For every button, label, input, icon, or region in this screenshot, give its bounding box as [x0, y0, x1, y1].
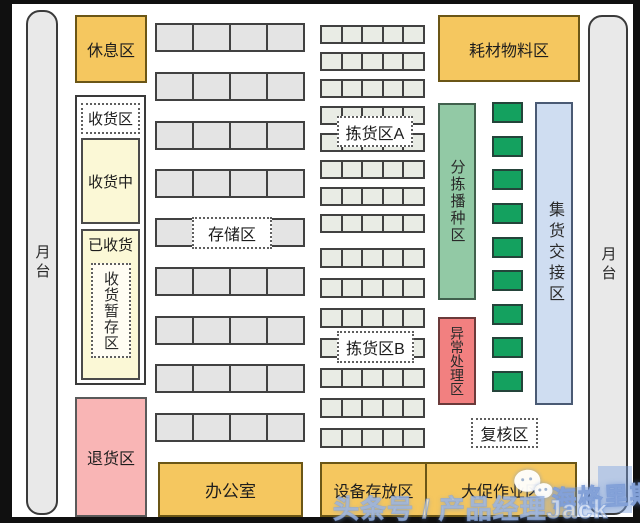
shelf-cell — [402, 216, 423, 231]
shelf-cell — [341, 370, 362, 386]
frame-bottom — [0, 517, 640, 523]
shelf-row — [320, 248, 425, 268]
shelf-cell — [361, 310, 382, 326]
shelf-cell — [192, 25, 229, 50]
shelf-row — [155, 169, 305, 198]
shelf-cell — [157, 366, 192, 391]
shelf-cell — [322, 81, 341, 96]
shelf-cell — [266, 25, 303, 50]
shelf-cell — [361, 54, 382, 69]
frame-left — [0, 0, 12, 523]
shelf-cell — [341, 27, 362, 42]
shelf-cell — [322, 400, 341, 416]
shelf-cell — [229, 366, 266, 391]
shelf-cell — [157, 415, 192, 440]
zone-picking-a-label: 拣货区A — [337, 116, 413, 147]
shelf-cell — [192, 123, 229, 148]
shelf-cell — [341, 400, 362, 416]
shelf-cell — [382, 250, 403, 266]
shelf-cell — [322, 310, 341, 326]
shelf-cell — [402, 310, 423, 326]
shelf-cell — [322, 189, 341, 204]
shelf-cell — [266, 74, 303, 99]
shelf-cell — [192, 318, 229, 343]
shelf-cell — [157, 74, 192, 99]
shelf-cell — [361, 430, 382, 446]
dock-left: 月台 — [26, 10, 58, 515]
shelf-cell — [266, 123, 303, 148]
sorting-slot — [492, 169, 523, 190]
zone-receiving-staging: 收货暂存区 — [91, 263, 131, 358]
shelf-row — [320, 368, 425, 388]
shelf-cell — [402, 162, 423, 177]
shelf-row — [320, 79, 425, 98]
shelf-cell — [382, 81, 403, 96]
shelf-cell — [266, 171, 303, 196]
zone-received: 已收货 收货暂存区 — [81, 229, 140, 380]
zone-storage-label: 存储区 — [192, 217, 272, 249]
shelf-cell — [361, 280, 382, 296]
shelf-cell — [382, 430, 403, 446]
shelf-cell — [361, 400, 382, 416]
shelf-cell — [266, 269, 303, 294]
shelf-cell — [192, 171, 229, 196]
shelf-cell — [229, 123, 266, 148]
zone-picking-b-label: 拣货区B — [337, 331, 414, 363]
shelf-row — [155, 413, 305, 442]
shelf-row — [155, 316, 305, 345]
shelf-cell — [402, 430, 423, 446]
shelf-cell — [229, 25, 266, 50]
shelf-cell — [382, 189, 403, 204]
shelf-cell — [229, 415, 266, 440]
shelf-cell — [361, 189, 382, 204]
shelf-row — [155, 267, 305, 296]
sorting-slot — [492, 371, 523, 392]
shelf-cell — [192, 366, 229, 391]
shelf-cell — [341, 250, 362, 266]
shelf-row — [320, 160, 425, 179]
shelf-cell — [361, 27, 382, 42]
zone-consolidation: 集货交接区 — [535, 102, 573, 405]
shelf-row — [155, 121, 305, 150]
zone-exception-handling-label: 异常处理区 — [447, 326, 467, 396]
zone-consolidation-label: 集货交接区 — [542, 201, 566, 306]
shelf-row — [155, 23, 305, 52]
shelf-cell — [192, 74, 229, 99]
zone-office: 办公室 — [158, 462, 303, 517]
zone-sorting-seeding: 分拣播种区 — [438, 103, 476, 300]
shelf-cell — [157, 269, 192, 294]
shelf-cell — [322, 430, 341, 446]
shelf-cell — [322, 54, 341, 69]
shelf-cell — [402, 81, 423, 96]
zone-returns: 退货区 — [75, 397, 147, 517]
shelf-row — [320, 25, 425, 44]
sorting-slot — [492, 102, 523, 123]
zone-equipment-storage: 设备存放区 — [322, 464, 425, 515]
shelf-cell — [229, 318, 266, 343]
zone-receiving-label: 收货区 — [81, 103, 140, 134]
shelf-cell — [361, 370, 382, 386]
sorting-slot — [492, 136, 523, 157]
shelf-cell — [341, 189, 362, 204]
shelf-cell — [361, 250, 382, 266]
shelf-cell — [266, 318, 303, 343]
zone-review-label: 复核区 — [471, 418, 538, 448]
shelf-row — [320, 308, 425, 328]
shelf-cell — [402, 189, 423, 204]
zone-equipment-promo-strip: 设备存放区 大促作业区 — [320, 462, 577, 517]
zone-promo-operations: 大促作业区 — [425, 464, 575, 515]
zone-receiving-in-progress: 收货中 — [81, 138, 140, 224]
dock-right-label: 月台 — [598, 246, 619, 284]
shelf-cell — [361, 216, 382, 231]
shelf-cell — [382, 310, 403, 326]
shelf-cell — [322, 250, 341, 266]
shelf-cell — [229, 269, 266, 294]
shelf-cell — [157, 220, 192, 245]
sorting-slot-column — [492, 102, 523, 392]
shelf-cell — [341, 54, 362, 69]
shelf-cell — [341, 162, 362, 177]
dock-right: 月台 — [588, 15, 628, 515]
shelf-cell — [382, 400, 403, 416]
sorting-slot — [492, 337, 523, 358]
shelf-row — [320, 52, 425, 71]
shelf-cell — [322, 216, 341, 231]
shelf-cell — [402, 280, 423, 296]
shelf-cell — [382, 216, 403, 231]
shelf-cell — [402, 27, 423, 42]
shelf-cell — [341, 216, 362, 231]
shelf-cell — [341, 430, 362, 446]
shelf-cell — [341, 310, 362, 326]
shelf-cell — [402, 370, 423, 386]
shelf-cell — [341, 81, 362, 96]
shelf-cell — [322, 27, 341, 42]
frame-right — [633, 0, 640, 523]
sorting-slot — [492, 304, 523, 325]
sorting-slot — [492, 237, 523, 258]
zone-exception-handling: 异常处理区 — [438, 317, 476, 405]
dock-left-label: 月台 — [32, 244, 53, 282]
shelf-row — [320, 398, 425, 418]
shelf-cell — [157, 25, 192, 50]
shelf-row — [155, 364, 305, 393]
zone-sorting-seeding-label: 分拣播种区 — [447, 159, 468, 244]
shelf-cell — [382, 162, 403, 177]
shelf-cell — [402, 54, 423, 69]
warehouse-layout-diagram: 月台 月台 休息区 收货区 收货中 已收货 收货暂存区 退货区 存储区 拣货区A… — [0, 0, 640, 523]
shelf-cell — [157, 123, 192, 148]
shelf-cell — [266, 366, 303, 391]
shelf-cell — [322, 162, 341, 177]
shelf-cell — [382, 27, 403, 42]
zone-consumables: 耗材物料区 — [438, 15, 580, 82]
sorting-slot — [492, 203, 523, 224]
shelf-cell — [382, 370, 403, 386]
shelf-cell — [192, 415, 229, 440]
shelf-cell — [382, 280, 403, 296]
shelf-cell — [229, 74, 266, 99]
shelf-row — [155, 72, 305, 101]
zone-receiving-container: 收货区 收货中 已收货 收货暂存区 — [75, 95, 146, 385]
shelf-cell — [382, 54, 403, 69]
shelf-cell — [361, 81, 382, 96]
zone-received-label: 已收货 — [88, 234, 133, 255]
shelf-cell — [341, 280, 362, 296]
shelf-row — [320, 428, 425, 448]
shelf-cell — [266, 415, 303, 440]
shelf-row — [320, 278, 425, 298]
shelf-cell — [402, 250, 423, 266]
zone-rest-area: 休息区 — [75, 15, 147, 83]
shelf-cell — [402, 400, 423, 416]
shelf-cell — [322, 280, 341, 296]
shelf-row — [320, 187, 425, 206]
shelf-cell — [157, 318, 192, 343]
zone-receiving-staging-label: 收货暂存区 — [100, 271, 121, 351]
shelf-cell — [157, 171, 192, 196]
shelf-cell — [322, 370, 341, 386]
sorting-slot — [492, 270, 523, 291]
shelf-row — [320, 214, 425, 233]
shelf-cell — [192, 269, 229, 294]
shelf-cell — [361, 162, 382, 177]
frame-top — [0, 0, 640, 4]
shelf-cell — [229, 171, 266, 196]
